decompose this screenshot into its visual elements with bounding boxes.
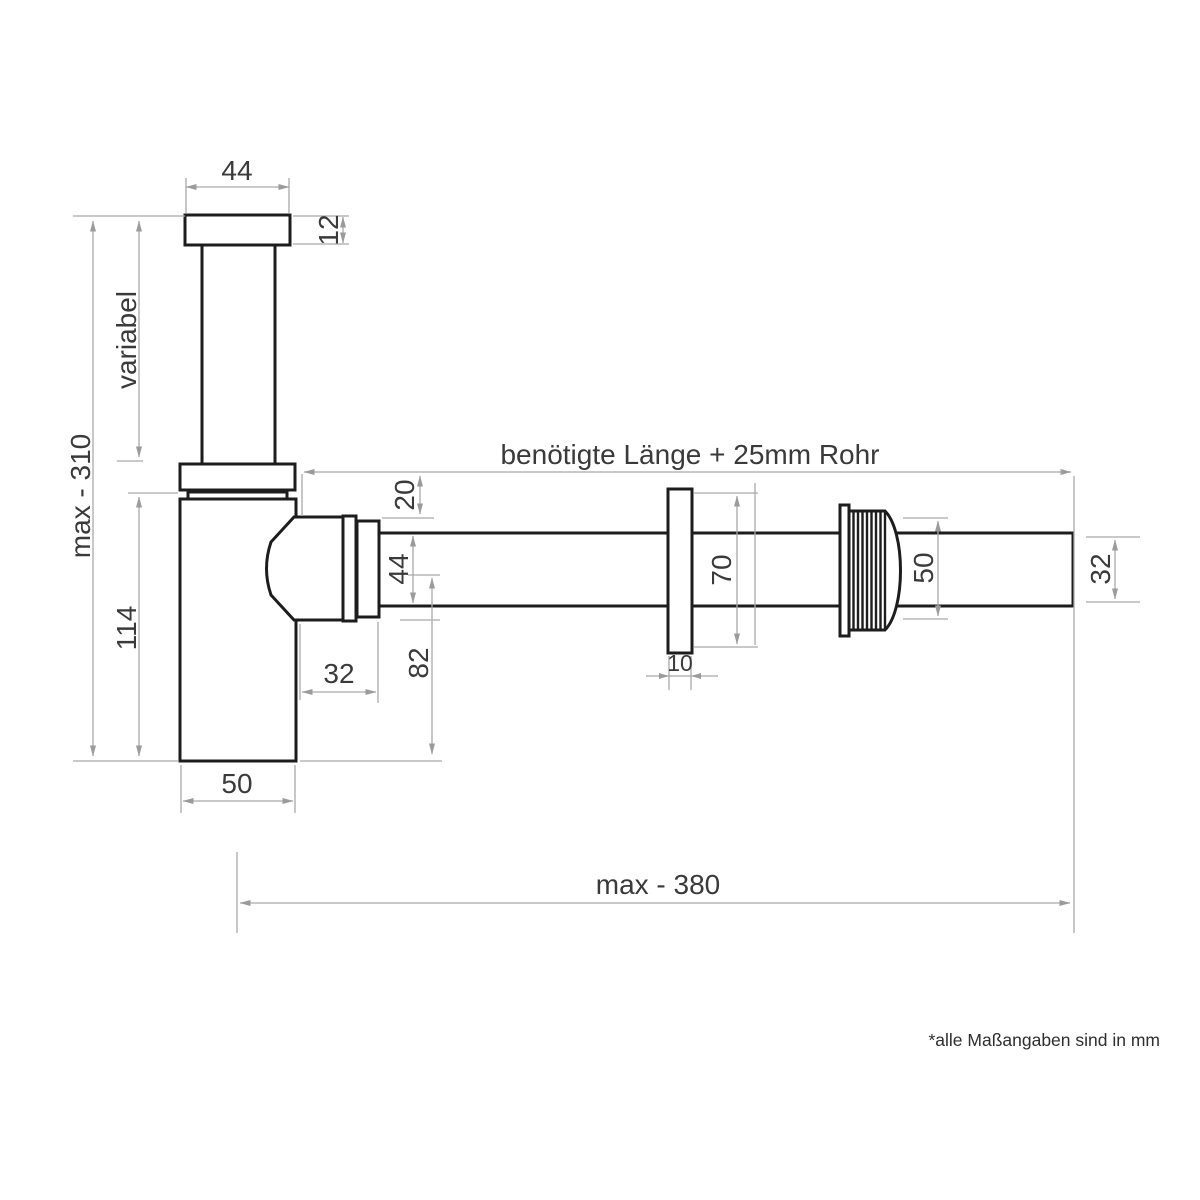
dim-max-height: max - 310 xyxy=(65,221,96,756)
dim-max-length: max - 380 xyxy=(237,852,1070,933)
elbow-ring-small xyxy=(343,516,356,621)
wall-plate xyxy=(668,489,692,653)
dim-flange-thickness: 12 xyxy=(293,214,349,245)
dim-label-pipe-od: 44 xyxy=(383,553,414,584)
dim-label-body-width: 50 xyxy=(221,768,252,799)
dim-label-flange-thickness: 12 xyxy=(313,214,344,245)
dim-plate-thickness: 10 xyxy=(646,650,718,690)
siphon-part xyxy=(180,215,1073,761)
dim-label-body-height: 114 xyxy=(111,606,142,651)
dim-label-max-length: max - 380 xyxy=(596,869,721,900)
dim-label-end-od: 32 xyxy=(1085,553,1116,584)
siphon-dimension-drawing: 44 12 variabel max - 310 114 20 44 82 xyxy=(0,0,1200,1200)
dim-flange-width: 44 xyxy=(186,155,289,213)
dim-label-required-length: benötigte Länge + 25mm Rohr xyxy=(500,439,879,470)
technical-drawing-page: 44 12 variabel max - 310 114 20 44 82 xyxy=(0,0,1200,1200)
riser-pipe xyxy=(202,245,275,464)
elbow-ring-large xyxy=(357,521,379,617)
dim-riser-variable: variabel xyxy=(111,221,143,461)
dim-inlet-offset: 20 xyxy=(382,476,434,518)
outlet-elbow xyxy=(267,517,346,620)
upper-flange xyxy=(180,464,295,490)
unit-note: *alle Maßangaben sind in mm xyxy=(928,1030,1160,1050)
dim-label-max-height: max - 310 xyxy=(65,434,96,559)
top-flange xyxy=(185,215,290,245)
dim-label-nut-od: 50 xyxy=(908,552,939,583)
dim-label-plate-height: 70 xyxy=(706,554,737,585)
dim-label-axis-to-bottom: 82 xyxy=(403,647,434,678)
dim-elbow-projection: 32 xyxy=(300,622,378,703)
dim-label-flange-width: 44 xyxy=(221,155,252,186)
dim-label-elbow-projection: 32 xyxy=(323,658,354,689)
dim-body-width: 50 xyxy=(181,765,295,813)
dim-label-inlet-offset: 20 xyxy=(389,479,420,510)
nut-threaded-body xyxy=(849,511,901,630)
dim-label-riser: variabel xyxy=(111,291,142,389)
dim-end-od: 32 xyxy=(1085,537,1140,602)
dim-label-plate-thickness: 10 xyxy=(667,650,693,676)
dim-body-height: 114 xyxy=(111,493,178,756)
